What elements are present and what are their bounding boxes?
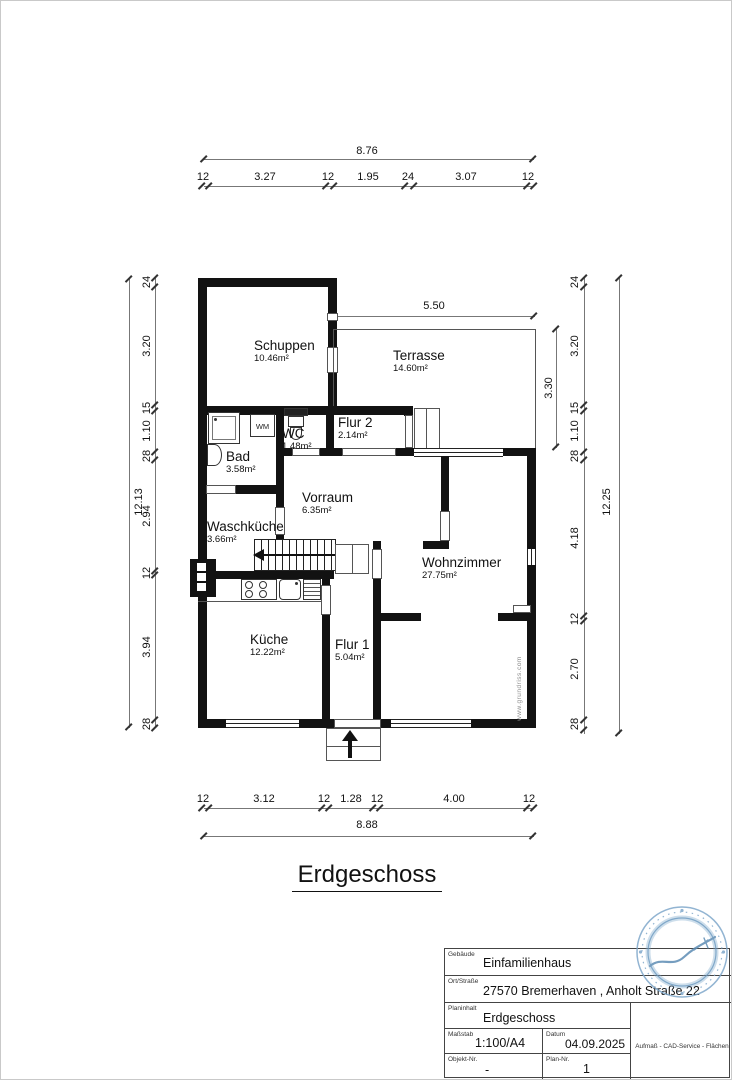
entrance-door: [334, 719, 381, 728]
interior-wall: [320, 448, 342, 456]
dim-seg: 3.07: [455, 171, 476, 183]
exterior-wall-right: [527, 565, 536, 728]
room-label-waschkueche: Waschküche 3.66m²: [207, 519, 284, 545]
dim-seg: 28: [141, 434, 153, 478]
stair-arrow-head: [253, 549, 264, 561]
room-area: 27.75m²: [422, 571, 501, 582]
dim-line: [204, 159, 534, 160]
burner-icon: [245, 581, 253, 589]
kueche-window: [226, 719, 299, 728]
room-label-wohnzimmer: Wohnzimmer 27.75m²: [422, 555, 501, 581]
chimney-flue: [197, 563, 206, 571]
stair-landing-edge: [352, 545, 353, 573]
approval-stamp: [634, 904, 730, 1000]
kueche-door: [321, 585, 331, 615]
terrace-edge: [535, 329, 536, 448]
titleblock-row-planinhalt: Planinhalt Erdgeschoss: [445, 1002, 630, 1028]
field-label: Datum: [546, 1031, 565, 1038]
wc-flur2-wall: [326, 406, 334, 448]
titleblock-cell-company: Aufmaß - CAD-Service - Flächen: [630, 1002, 731, 1079]
room-area: 5.04m²: [335, 653, 370, 664]
wc-cistern-icon: [284, 408, 308, 416]
room-area: 12.22m²: [250, 648, 288, 659]
burner-icon: [259, 581, 267, 589]
burner-icon: [259, 590, 267, 598]
field-value: 1: [583, 1062, 590, 1076]
exterior-wall-right: [527, 448, 536, 549]
dim-seg: 2.70: [569, 647, 581, 691]
dim-seg: 24: [402, 171, 414, 183]
floorplan-sheet: 8.76 12 3.27 12 1.95 24 3.07 12 12.13 24…: [0, 0, 732, 1080]
sink-drain-icon: [295, 582, 298, 585]
titleblock-cell-objektnr: Objekt-Nr. -: [445, 1053, 542, 1079]
entrance-arrow-stem: [348, 740, 352, 758]
dim-seg: 4.18: [569, 516, 581, 560]
dim-seg: 1.28: [340, 793, 361, 805]
exterior-wall-bottom: [471, 719, 536, 728]
dim-line: [556, 329, 557, 448]
field-value: Einfamilienhaus: [483, 956, 571, 970]
dim-seg: 12: [569, 597, 581, 641]
dim-line: [129, 278, 130, 728]
right-wall-window: [527, 549, 536, 565]
wohnzimmer-window: [391, 719, 471, 728]
flur1-wohnzimmer-wall: [373, 541, 381, 549]
room-label-flur1: Flur 1 5.04m²: [335, 637, 370, 663]
field-value: Erdgeschoss: [483, 1011, 555, 1025]
room-area: 6.35m²: [302, 506, 353, 517]
field-value: -: [485, 1063, 489, 1077]
dim-seg: 24: [569, 260, 581, 304]
counter-edge: [198, 601, 322, 602]
draining-board-icon: [303, 579, 321, 600]
field-label: Maßstab: [448, 1031, 473, 1038]
dim-tick: [530, 804, 537, 811]
wohnzimmer-divider: [498, 613, 528, 621]
interior-wall: [396, 448, 414, 456]
room-label-kueche: Küche 12.22m²: [250, 632, 288, 658]
dim-seg: 3.94: [141, 625, 153, 669]
room-area: 10.46m²: [254, 354, 315, 365]
titleblock-cell-datum: Datum 04.09.2025: [542, 1028, 630, 1053]
flur2-terrace-door: [405, 415, 413, 448]
exterior-wall-bottom: [198, 719, 226, 728]
kueche-flur1-wall: [322, 615, 330, 719]
vorraum-wohnzimmer-wall: [441, 456, 449, 511]
company-text: Aufmaß - CAD-Service - Flächen: [635, 1043, 729, 1050]
titleblock-cell-plannr: Plan-Nr. 1: [542, 1053, 630, 1079]
room-name: Wohnzimmer: [422, 555, 501, 571]
room-area: 14.60m²: [393, 364, 445, 375]
dim-line: [584, 278, 585, 734]
washing-machine-icon: WM: [250, 414, 275, 437]
bad-door: [206, 485, 236, 494]
flur1-wohnzimmer-wall: [373, 579, 381, 719]
dim-seg: 3.20: [141, 324, 153, 368]
room-name: Terrasse: [393, 348, 445, 364]
field-label: Objekt-Nr.: [448, 1056, 477, 1063]
bad-wall-bottom: [236, 485, 284, 494]
washbasin-icon: [207, 444, 222, 466]
room-area: 1.48m²: [282, 442, 312, 453]
room-label-bad: Bad 3.58m²: [226, 449, 256, 475]
room-label-schuppen: Schuppen 10.46m²: [254, 338, 315, 364]
schuppen-window: [327, 313, 338, 321]
schuppen-wall-right: [328, 278, 337, 313]
dim-tick: [125, 723, 132, 730]
flur2-door: [342, 448, 396, 456]
dim-line: [333, 316, 535, 317]
room-label-flur2: Flur 2 2.14m²: [338, 415, 373, 441]
dim-tick: [552, 443, 559, 450]
room-area: 3.58m²: [226, 465, 256, 476]
titleblock-cell-massstab: Maßstab 1:100/A4: [445, 1028, 542, 1053]
terrace-edge: [333, 329, 536, 330]
dim-seg: 2.94: [141, 494, 153, 538]
dim-seg: 12: [197, 171, 209, 183]
dim-seg: 4.00: [443, 793, 464, 805]
room-name: Vorraum: [302, 490, 353, 506]
field-label: Planinhalt: [448, 1005, 477, 1012]
dim-tick: [529, 832, 536, 839]
terrace-steps: [414, 408, 440, 449]
wohnzimmer-door: [440, 511, 450, 541]
terrace-edge: [333, 329, 334, 406]
room-name: Küche: [250, 632, 288, 648]
dim-seg: 12: [522, 171, 534, 183]
dim-terrace-width: 5.50: [423, 300, 444, 312]
flur1-door: [372, 549, 382, 579]
exterior-wall-left: [198, 278, 207, 728]
field-label: Plan-Nr.: [546, 1056, 569, 1063]
waschkueche-vorraum-wall: [276, 494, 284, 507]
wohnzimmer-divider: [381, 613, 421, 621]
sheet-title-text: Erdgeschoss: [292, 861, 443, 892]
bad-wall-bottom: [198, 485, 206, 494]
room-label-terrasse: Terrasse 14.60m²: [393, 348, 445, 374]
exterior-wall-bottom: [299, 719, 334, 728]
dim-seg: 12: [197, 793, 209, 805]
schuppen-wall-top: [198, 278, 337, 287]
room-area: 2.14m²: [338, 431, 373, 442]
dim-total-top: 8.76: [356, 145, 377, 157]
dim-tick: [530, 182, 537, 189]
field-label: Gebäude: [448, 951, 475, 958]
dim-seg: 3.27: [254, 171, 275, 183]
dim-tick: [530, 312, 537, 319]
sheet-title: Erdgeschoss: [257, 861, 477, 892]
dim-seg: 28: [569, 434, 581, 478]
burner-icon: [245, 590, 253, 598]
shower-drain-icon: [214, 418, 217, 421]
dim-line: [619, 278, 620, 734]
dim-seg: 28: [569, 702, 581, 746]
field-label: Ort/Straße: [448, 978, 478, 985]
room-name: Schuppen: [254, 338, 315, 354]
dim-seg: 3.12: [253, 793, 274, 805]
dim-total-right: 12.25: [601, 480, 613, 524]
room-name: Bad: [226, 449, 256, 465]
room-name: Flur 1: [335, 637, 370, 653]
dim-seg: 28: [141, 702, 153, 746]
room-name: WC: [282, 426, 312, 442]
dim-terrace-depth: 3.30: [543, 366, 555, 410]
room-name: Flur 2: [338, 415, 373, 431]
room-area: 3.66m²: [207, 535, 284, 546]
field-value: 04.09.2025: [565, 1037, 625, 1051]
dim-tick: [615, 729, 622, 736]
dim-line: [204, 186, 534, 187]
wall-stub: [423, 541, 449, 549]
watermark: www.grundriss.com: [516, 611, 523, 721]
dim-seg: 24: [141, 260, 153, 304]
room-label-vorraum: Vorraum 6.35m²: [302, 490, 353, 516]
dim-total-bottom: 8.88: [356, 819, 377, 831]
stamp-graphic: [634, 904, 730, 1000]
chimney-flue: [197, 583, 206, 591]
entrance-step-edge: [327, 746, 380, 747]
exterior-wall-bottom: [381, 719, 391, 728]
terrace-window: [414, 448, 503, 457]
field-value: 1:100/A4: [475, 1036, 525, 1050]
dim-line: [204, 836, 534, 837]
chimney-flue: [197, 573, 206, 581]
dim-tick: [529, 155, 536, 162]
kueche-wall-top: [198, 571, 334, 579]
dim-seg: 3.20: [569, 324, 581, 368]
dim-line: [155, 278, 156, 728]
dim-seg: 1.95: [357, 171, 378, 183]
terrace-step-edge: [426, 409, 427, 448]
room-label-wc: WC 1.48m²: [282, 426, 312, 452]
room-name: Waschküche: [207, 519, 284, 535]
